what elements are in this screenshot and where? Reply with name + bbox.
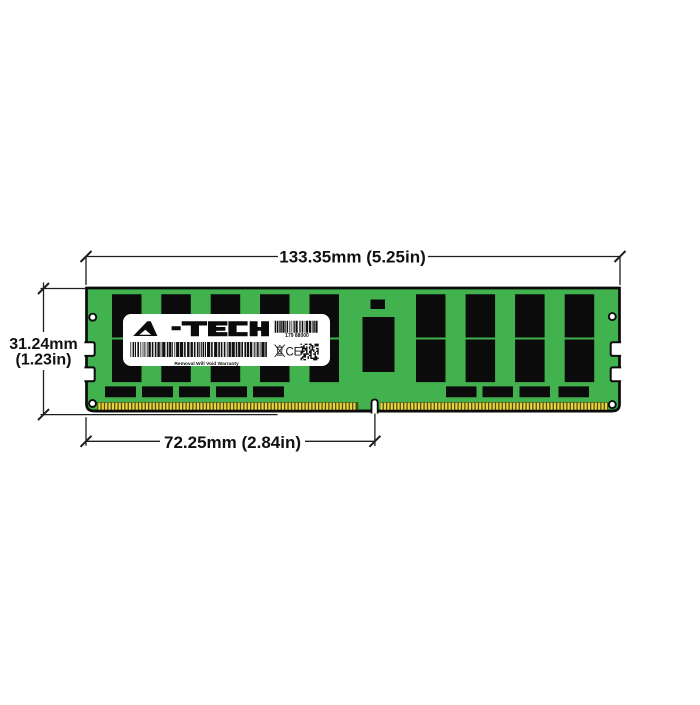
svg-text:72.25mm (2.84in): 72.25mm (2.84in) bbox=[164, 433, 301, 452]
svg-text:E: E bbox=[294, 347, 302, 359]
svg-text:(1.23in): (1.23in) bbox=[15, 352, 71, 369]
svg-text:C: C bbox=[286, 347, 294, 359]
svg-text:Removal Will Void Warranty: Removal Will Void Warranty bbox=[174, 361, 239, 367]
svg-text:133.35mm (5.25in): 133.35mm (5.25in) bbox=[279, 248, 425, 267]
svg-text:31.24mm: 31.24mm bbox=[9, 336, 78, 353]
svg-text:179 88000: 179 88000 bbox=[285, 333, 309, 339]
